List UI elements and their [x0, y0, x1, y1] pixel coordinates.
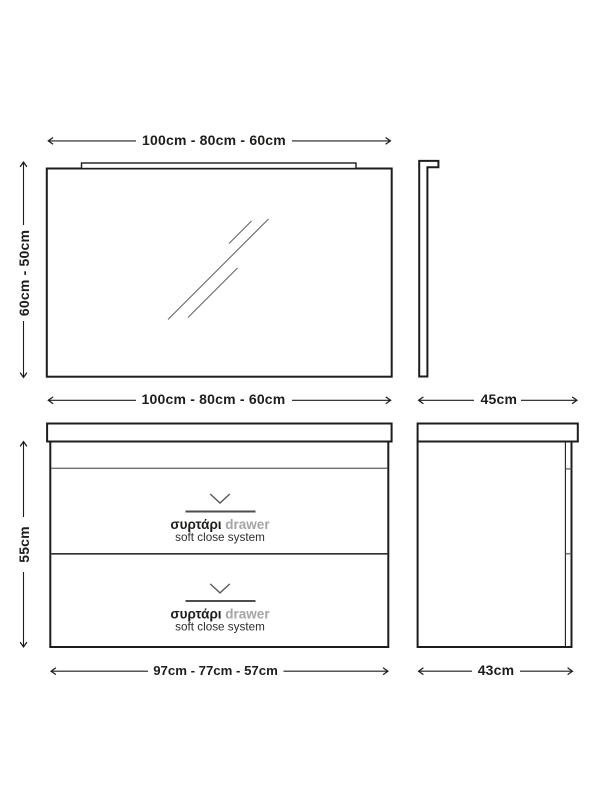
- svg-text:43cm: 43cm: [478, 662, 515, 678]
- svg-text:55cm: 55cm: [16, 526, 32, 563]
- svg-text:soft close system: soft close system: [175, 620, 265, 633]
- svg-text:97cm - 77cm - 57cm: 97cm - 77cm - 57cm: [153, 663, 278, 678]
- svg-text:100cm - 80cm - 60cm: 100cm - 80cm - 60cm: [142, 132, 286, 148]
- svg-text:soft close system: soft close system: [175, 531, 265, 544]
- svg-text:100cm - 80cm - 60cm: 100cm - 80cm - 60cm: [142, 391, 286, 407]
- svg-text:45cm: 45cm: [480, 391, 517, 407]
- svg-text:60cm - 50cm: 60cm - 50cm: [16, 230, 32, 316]
